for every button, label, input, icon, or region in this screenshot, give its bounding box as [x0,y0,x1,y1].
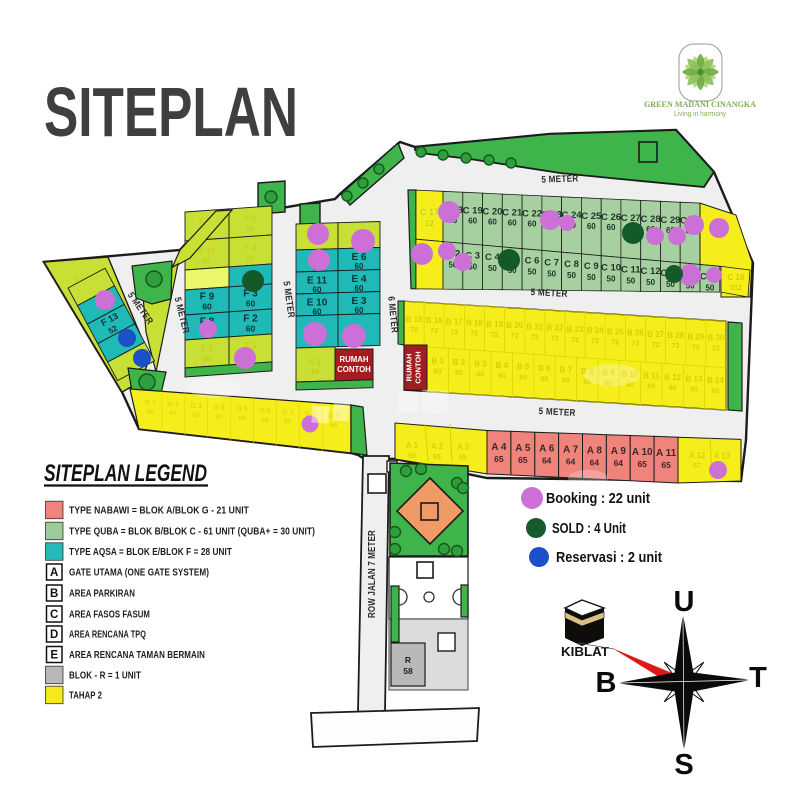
svg-text:65: 65 [661,460,671,470]
svg-text:C 29: C 29 [660,215,680,226]
svg-text:B: B [50,588,58,600]
svg-text:B 1: B 1 [431,357,444,366]
svg-text:60: 60 [519,375,527,382]
svg-text:50: 50 [607,275,616,284]
svg-text:B 24: B 24 [587,326,604,335]
svg-text:60: 60 [669,385,677,392]
svg-text:C: C [50,609,58,621]
svg-text:CONTOH: CONTOH [337,365,371,374]
svg-text:50: 50 [705,283,714,292]
svg-text:B 11: B 11 [643,372,660,381]
svg-text:A 12: A 12 [689,451,706,460]
svg-text:RUMAH: RUMAH [405,354,414,382]
svg-text:D: D [50,629,58,641]
svg-text:60: 60 [541,376,549,383]
svg-text:B 22: B 22 [546,324,563,333]
svg-text:A: A [50,567,58,579]
svg-text:AREA FASOS FASUM: AREA FASOS FASUM [69,610,150,621]
svg-text:65: 65 [518,455,528,465]
svg-text:C 12: C 12 [641,266,661,277]
svg-text:C 7: C 7 [544,257,559,268]
svg-text:G 5: G 5 [236,406,247,413]
svg-text:SITEPLAN LEGEND: SITEPLAN LEGEND [44,460,207,487]
svg-text:65: 65 [408,453,416,460]
svg-text:72: 72 [450,329,458,336]
svg-text:C 26: C 26 [601,212,621,223]
svg-text:B 15: B 15 [406,315,423,324]
svg-text:72: 72 [531,334,539,341]
svg-text:60: 60 [488,218,497,227]
svg-text:60: 60 [690,387,698,394]
svg-text:60: 60 [477,372,485,379]
svg-text:B 7: B 7 [560,366,573,375]
svg-text:60: 60 [647,384,655,391]
svg-text:B 30: B 30 [707,334,724,343]
svg-text:A 4: A 4 [491,442,507,453]
svg-text:C 25: C 25 [581,211,602,222]
svg-text:64: 64 [566,456,576,466]
svg-text:G 3: G 3 [191,403,202,410]
svg-text:72: 72 [410,327,418,334]
svg-text:72: 72 [692,344,700,351]
svg-text:TAHAP 2: TAHAP 2 [69,691,102,702]
svg-text:C 8: C 8 [564,259,579,270]
svg-text:12: 12 [425,219,434,228]
svg-text:B 2: B 2 [453,358,466,367]
svg-text:50: 50 [528,268,537,277]
svg-text:72: 72 [491,332,499,339]
svg-text:50: 50 [587,273,596,282]
svg-text:65: 65 [494,454,504,464]
svg-text:64: 64 [590,457,600,467]
svg-text:65: 65 [637,459,647,469]
svg-text:G 6: G 6 [259,408,270,415]
svg-text:SITEPLAN: SITEPLAN [44,73,298,151]
svg-text:G 7: G 7 [282,410,293,417]
svg-text:C 11: C 11 [621,264,641,275]
svg-text:60: 60 [246,298,256,308]
svg-text:AREA PARKIRAN: AREA PARKIRAN [69,589,135,600]
svg-text:C 10: C 10 [601,263,621,274]
svg-text:B 19: B 19 [486,320,503,329]
svg-text:50: 50 [488,264,497,273]
svg-text:TYPE QUBA = BLOK B/BLOK C -: TYPE QUBA = BLOK B/BLOK C - 61 UNIT (QUB… [69,527,315,538]
svg-text:58: 58 [403,666,413,676]
svg-text:C 22: C 22 [522,208,542,219]
svg-text:60: 60 [203,259,211,266]
svg-text:CONTOH: CONTOH [414,351,423,383]
svg-text:G 2: G 2 [168,401,179,408]
svg-text:C 28: C 28 [641,214,661,225]
svg-text:C 17: C 17 [420,207,439,217]
svg-text:TYPE AQSA = BLOK E/BLOK F =: TYPE AQSA = BLOK E/BLOK F = 28 UNIT [69,547,232,558]
svg-text:C 21: C 21 [502,208,523,219]
svg-text:72: 72 [672,343,680,350]
svg-text:F 10: F 10 [199,247,216,256]
svg-text:72: 72 [712,346,720,353]
svg-text:64: 64 [542,456,552,466]
svg-text:B 3: B 3 [474,360,487,369]
svg-text:60: 60 [284,419,292,426]
svg-text:64: 64 [614,458,624,468]
svg-text:B: B [596,667,617,699]
svg-text:60: 60 [311,369,319,376]
svg-text:60: 60 [247,255,255,262]
svg-text:B 6: B 6 [538,364,551,373]
svg-text:GATE UTAMA (ONE GATE SYSTEM): GATE UTAMA (ONE GATE SYSTEM) [69,568,209,579]
svg-text:50: 50 [646,278,655,287]
svg-text:B 4: B 4 [496,361,509,370]
svg-text:A 10: A 10 [632,447,653,458]
svg-text:72: 72 [591,338,599,345]
svg-text:60: 60 [508,219,517,228]
svg-text:60: 60 [203,357,211,364]
svg-text:B 5: B 5 [517,363,530,372]
svg-text:Booking : 22 unit: Booking : 22 unit [546,491,650,507]
svg-text:212: 212 [730,285,742,292]
svg-text:60: 60 [498,373,506,380]
svg-text:A 6: A 6 [539,444,555,455]
svg-text:S: S [674,749,693,781]
svg-text:B 26: B 26 [627,329,644,338]
svg-text:B 21: B 21 [526,322,543,331]
svg-text:BLOK - R = 1 UNIT: BLOK - R = 1 UNIT [69,671,141,682]
svg-text:60: 60 [455,370,463,377]
svg-text:A 8: A 8 [587,445,603,456]
svg-text:A 2: A 2 [431,442,444,451]
svg-text:A 7: A 7 [563,444,579,455]
svg-text:60: 60 [711,388,719,395]
svg-text:50: 50 [567,271,576,280]
svg-text:72: 72 [611,339,619,346]
svg-text:G 4: G 4 [213,405,224,412]
svg-text:B 20: B 20 [506,321,523,330]
svg-text:B 18: B 18 [466,319,483,328]
svg-text:RUMAH: RUMAH [339,355,368,364]
svg-text:R: R [405,655,411,665]
svg-text:60: 60 [261,417,269,424]
svg-text:F 4: F 4 [245,243,257,252]
svg-text:B 12: B 12 [664,373,681,382]
svg-text:E: E [50,650,58,662]
svg-text:A 11: A 11 [656,448,677,459]
svg-text:60: 60 [607,223,616,232]
svg-text:72: 72 [471,331,479,338]
svg-text:60: 60 [587,222,596,231]
svg-text:C 16: C 16 [728,273,745,282]
svg-text:60: 60 [330,422,338,429]
svg-text:TYPE NABAWI = BLOK A/BLOK G: TYPE NABAWI = BLOK A/BLOK G - 21 UNIT [69,506,250,517]
svg-text:50: 50 [626,276,635,285]
svg-text:B 13: B 13 [686,375,703,384]
svg-text:65: 65 [459,455,467,462]
svg-text:B 28: B 28 [667,331,684,340]
svg-text:60: 60 [528,219,537,228]
svg-text:60: 60 [562,378,570,385]
svg-text:60: 60 [215,414,223,421]
svg-text:GREEN MADANI CINANGKA: GREEN MADANI CINANGKA [644,99,757,109]
svg-text:C 20: C 20 [482,207,502,218]
svg-text:60: 60 [238,415,246,422]
svg-text:72: 72 [652,342,660,349]
svg-text:60: 60 [147,409,155,416]
svg-text:60: 60 [246,323,256,333]
svg-text:T: T [749,662,767,694]
svg-text:60: 60 [468,217,477,226]
svg-text:B 25: B 25 [607,327,624,336]
svg-text:72: 72 [430,328,438,335]
svg-text:A 5: A 5 [515,443,531,454]
svg-text:A 13: A 13 [714,452,731,461]
svg-text:B 17: B 17 [446,317,463,326]
svg-text:B 23: B 23 [567,325,584,334]
svg-text:72: 72 [551,336,559,343]
svg-text:72: 72 [632,341,640,348]
svg-text:B 29: B 29 [687,332,704,341]
svg-text:C 6: C 6 [525,256,540,267]
svg-text:B 16: B 16 [426,316,443,325]
svg-text:E 1: E 1 [309,358,322,367]
svg-text:60: 60 [434,369,442,376]
svg-text:F 7: F 7 [201,345,213,354]
svg-text:ROW JALAN 7 METER: ROW JALAN 7 METER [367,530,378,618]
svg-text:50: 50 [547,269,556,278]
svg-text:C 19: C 19 [463,206,483,217]
svg-text:AREA RENCANA TAMAN BERMAIN: AREA RENCANA TAMAN BERMAIN [69,650,205,661]
svg-text:B 27: B 27 [647,330,664,339]
svg-text:Living in harmony: Living in harmony [674,111,726,118]
svg-text:60: 60 [193,412,201,419]
svg-text:60: 60 [202,302,212,312]
svg-text:5 METER: 5 METER [541,173,578,185]
svg-text:60: 60 [170,410,178,417]
svg-text:Reservasi : 2 unit: Reservasi : 2 unit [556,550,662,566]
svg-text:72: 72 [571,337,579,344]
svg-text:A 9: A 9 [611,446,627,457]
svg-text:5 METER: 5 METER [530,287,568,300]
svg-text:5 METER: 5 METER [538,406,576,419]
svg-text:F 5: F 5 [245,214,257,223]
svg-text:65: 65 [433,454,441,461]
svg-text:C 9: C 9 [584,261,599,272]
svg-text:72: 72 [511,333,519,340]
svg-text:60: 60 [247,226,255,233]
svg-text:A 1: A 1 [406,441,419,450]
svg-text:67: 67 [693,463,701,470]
svg-text:SOLD : 4 Unit: SOLD : 4 Unit [552,521,626,537]
svg-text:AREA RENCANA TPQ: AREA RENCANA TPQ [69,630,146,641]
svg-text:G 1: G 1 [145,400,156,407]
svg-text:A 3: A 3 [457,443,470,452]
svg-text:B 14: B 14 [707,376,724,385]
svg-text:U: U [674,586,695,618]
